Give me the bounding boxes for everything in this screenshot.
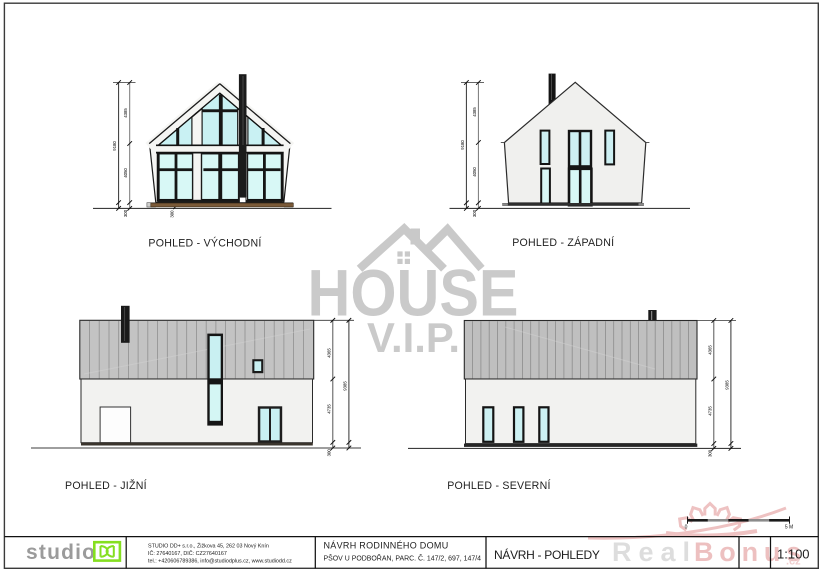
svg-text:POHLED - SEVERNÍ: POHLED - SEVERNÍ bbox=[447, 479, 551, 492]
svg-text:IČ: 27640167, DIČ: CZ27640167: IČ: 27640167, DIČ: CZ27640167 bbox=[148, 550, 227, 557]
svg-text:POHLED - ZÁPADNÍ: POHLED - ZÁPADNÍ bbox=[512, 236, 614, 249]
svg-text:V.I.P.: V.I.P. bbox=[367, 314, 460, 361]
svg-text:POHLED - JIŽNÍ: POHLED - JIŽNÍ bbox=[65, 479, 147, 492]
svg-text:9385: 9385 bbox=[724, 380, 729, 390]
svg-text:300: 300 bbox=[707, 449, 712, 457]
svg-text:4050: 4050 bbox=[472, 167, 477, 177]
svg-text:PŠOV U PODBOŘAN, PARC. Č. 147/: PŠOV U PODBOŘAN, PARC. Č. 147/2, 697, 14… bbox=[324, 553, 482, 562]
svg-text:1:100: 1:100 bbox=[777, 547, 810, 562]
svg-text:300: 300 bbox=[326, 449, 331, 457]
svg-text:9385: 9385 bbox=[342, 381, 347, 391]
svg-text:4365: 4365 bbox=[326, 348, 331, 358]
svg-text:4385: 4385 bbox=[123, 108, 128, 118]
svg-text:Real: Real bbox=[612, 537, 697, 567]
svg-text:0: 0 bbox=[685, 525, 688, 531]
svg-text:5 M: 5 M bbox=[785, 525, 793, 531]
svg-text:4385: 4385 bbox=[472, 107, 477, 117]
svg-text:300: 300 bbox=[123, 209, 128, 217]
svg-text:NÁVRH - POHLEDY: NÁVRH - POHLEDY bbox=[494, 547, 600, 562]
svg-text:9180: 9180 bbox=[460, 140, 465, 150]
svg-text:300: 300 bbox=[472, 209, 477, 217]
svg-text:300: 300 bbox=[170, 210, 175, 218]
svg-text:4735: 4735 bbox=[326, 404, 331, 414]
svg-text:STUDIO DD+ s.r.o., Žižkova 45,: STUDIO DD+ s.r.o., Žižkova 45, 262 03 No… bbox=[148, 541, 269, 549]
svg-text:studio: studio bbox=[26, 541, 96, 564]
svg-text:NÁVRH RODINNÉHO DOMU: NÁVRH RODINNÉHO DOMU bbox=[324, 541, 449, 551]
svg-text:tel.: +420606789386, info@stud: tel.: +420606789386, info@studiodplus.cz… bbox=[148, 558, 292, 564]
svg-text:9180: 9180 bbox=[112, 141, 117, 151]
svg-text:4365: 4365 bbox=[707, 345, 712, 355]
svg-text:POHLED - VÝCHODNÍ: POHLED - VÝCHODNÍ bbox=[148, 237, 261, 250]
svg-text:4735: 4735 bbox=[707, 406, 712, 416]
svg-text:4050: 4050 bbox=[123, 168, 128, 178]
